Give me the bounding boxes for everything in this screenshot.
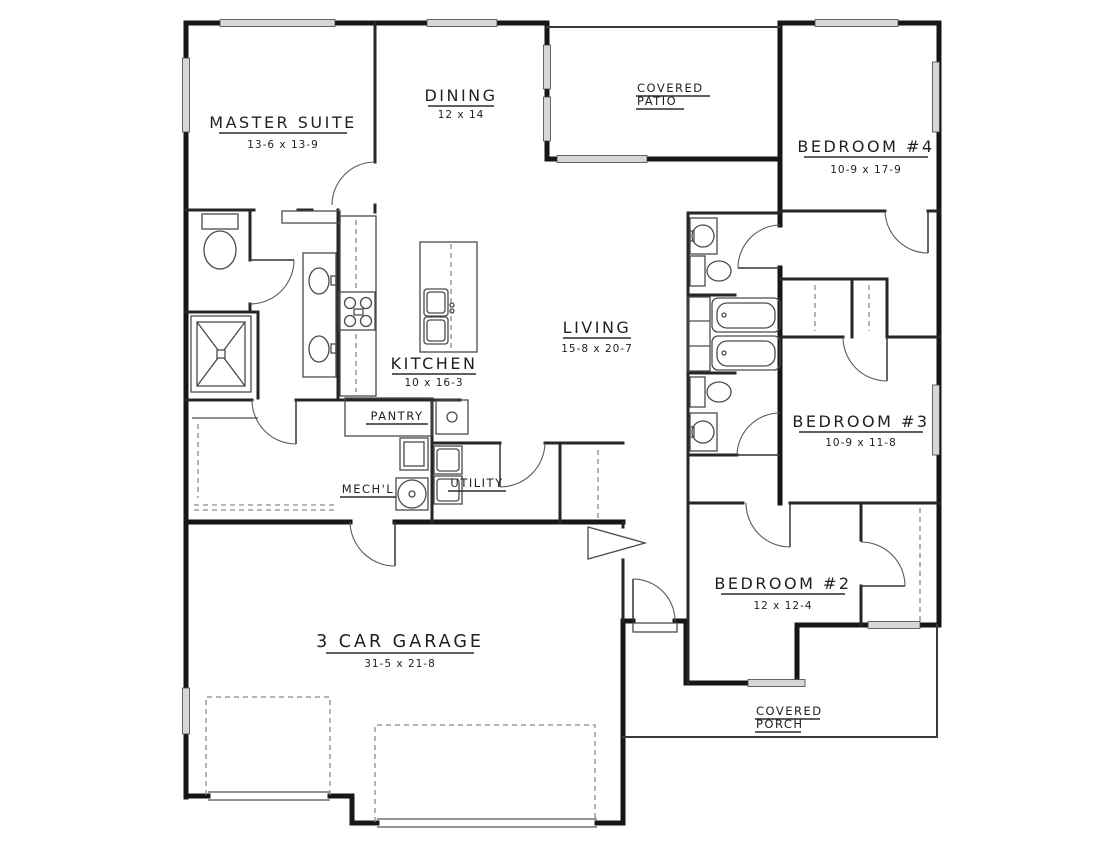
room-dims: 10 x 16-3 — [404, 377, 463, 389]
room-name: DINING — [424, 86, 497, 105]
room-label-bedroom-3: BEDROOM #3 10-9 x 11-8 — [792, 412, 929, 449]
washer — [434, 446, 462, 474]
area-name-line2: PATIO — [637, 94, 677, 108]
kitchen-range — [339, 292, 375, 330]
doors — [250, 162, 928, 632]
patio-porch-outline — [547, 27, 937, 737]
bathtub-1 — [712, 298, 780, 332]
fixtures — [191, 211, 780, 510]
room-dims: 13-6 x 13-9 — [247, 139, 319, 151]
master-vanity — [303, 253, 336, 377]
room-label-garage: 3 CAR GARAGE 31-5 x 21-8 — [316, 632, 484, 670]
room-dims: 12 x 12-4 — [753, 600, 812, 612]
utility-label: PANTRY — [371, 409, 424, 423]
label-mechl: MECH'L — [340, 482, 396, 497]
kitchen-counter — [282, 211, 376, 396]
room-dims: 10-9 x 11-8 — [825, 437, 897, 449]
master-shower — [191, 316, 251, 392]
room-name: MASTER SUITE — [209, 113, 356, 132]
utility-label: UTILITY — [450, 476, 503, 490]
kitchen-island — [420, 242, 477, 352]
master-toilet-door — [250, 260, 294, 304]
room-label-dining: DINING 12 x 14 — [424, 86, 497, 121]
window-garage-left — [183, 688, 190, 734]
bedroom2-door — [746, 503, 790, 547]
furnace — [400, 438, 428, 470]
labels: MASTER SUITE 13-6 x 13-9 DINING 12 x 14 … — [209, 81, 934, 732]
room-dims: 12 x 14 — [438, 109, 485, 121]
room-dims: 10-9 x 17-9 — [830, 164, 902, 176]
bathroom1-toilet — [690, 256, 731, 286]
garage-door-2 — [377, 819, 597, 827]
window-dining-patio-1 — [544, 45, 551, 89]
window-dining-top — [427, 20, 497, 27]
room-name: BEDROOM #3 — [792, 412, 929, 431]
window-bedroom4-top — [815, 20, 898, 27]
bedroom2-closet-door — [861, 542, 905, 586]
room-name: BEDROOM #4 — [797, 137, 934, 156]
area-label-covered-patio: COVERED PATIO — [636, 81, 710, 109]
bedroom4-door — [885, 211, 928, 253]
bathroom1-vanity — [690, 218, 717, 254]
room-label-master-suite: MASTER SUITE 13-6 x 13-9 — [209, 113, 356, 151]
floor-plan-canvas: MASTER SUITE 13-6 x 13-9 DINING 12 x 14 … — [0, 0, 1100, 850]
floor-plan-page: MASTER SUITE 13-6 x 13-9 DINING 12 x 14 … — [0, 0, 1100, 850]
room-label-kitchen: KITCHEN 10 x 16-3 — [391, 354, 478, 389]
garage-entry-door — [588, 527, 645, 559]
master-suite-door — [332, 162, 375, 205]
label-utility: UTILITY — [448, 476, 506, 491]
area-name-line2: PORCH — [756, 717, 804, 731]
window-master-top — [220, 20, 335, 27]
garage-doors — [208, 792, 597, 827]
window-bedroom4-right — [933, 62, 940, 132]
utility-label: MECH'L — [342, 482, 394, 496]
room-label-bedroom-2: BEDROOM #2 12 x 12-4 — [714, 574, 851, 612]
room-label-bedroom-4: BEDROOM #4 10-9 x 17-9 — [797, 137, 934, 176]
water-heater — [396, 478, 428, 510]
room-label-living: LIVING 15-8 x 20-7 — [561, 318, 633, 355]
area-name-line1: COVERED — [756, 704, 823, 718]
label-pantry: PANTRY — [366, 409, 428, 424]
bedroom3-door — [843, 337, 887, 381]
room-dims: 15-8 x 20-7 — [561, 343, 633, 355]
room-name: 3 CAR GARAGE — [316, 632, 484, 652]
linen-closet — [688, 297, 710, 371]
bathroom2-door — [737, 413, 780, 455]
area-name-line1: COVERED — [637, 81, 704, 95]
area-label-covered-porch: COVERED PORCH — [755, 704, 823, 732]
master-toilet — [202, 214, 238, 269]
bathroom1-door — [738, 225, 780, 268]
room-dims: 31-5 x 21-8 — [364, 658, 436, 670]
utility-door — [500, 443, 545, 487]
hall-desk — [436, 400, 468, 434]
walkin-closet-door — [252, 400, 296, 444]
bathroom2-vanity — [690, 413, 717, 451]
entry-threshold — [633, 623, 677, 632]
garage-door-1 — [208, 792, 330, 800]
window-dining-patio-2 — [544, 97, 551, 141]
bathroom2-toilet — [690, 377, 731, 407]
window-master-left — [183, 58, 190, 132]
garage-bay-1 — [206, 697, 330, 795]
window-bedroom3-right — [933, 385, 940, 455]
room-name: LIVING — [563, 318, 632, 337]
mechanical-door — [350, 522, 395, 566]
front-entry-door — [633, 579, 677, 632]
bathtub-2 — [712, 336, 780, 370]
patio-sliding-door — [557, 156, 647, 163]
garage-bay-2 — [375, 725, 595, 822]
window-bedroom2-closet — [868, 622, 920, 629]
room-name: BEDROOM #2 — [714, 574, 851, 593]
room-name: KITCHEN — [391, 354, 478, 373]
window-bedroom2-bay — [748, 680, 805, 687]
